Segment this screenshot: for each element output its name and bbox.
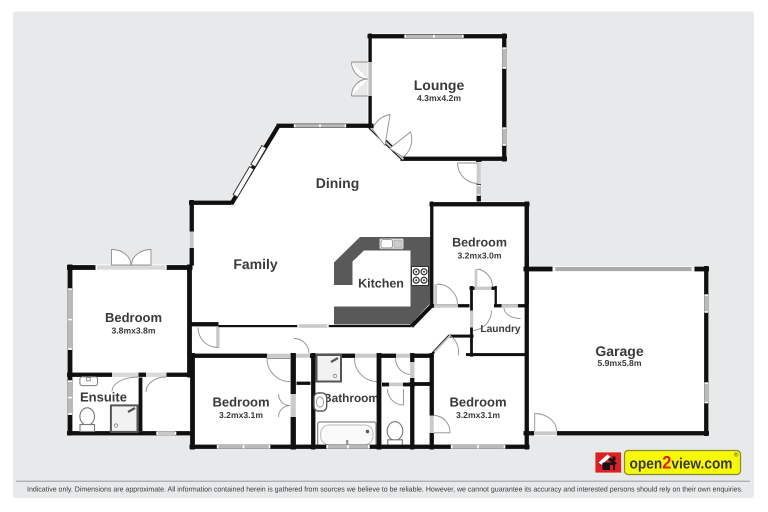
svg-text:Bathroom: Bathroom [323,391,379,405]
svg-text:Kitchen: Kitchen [358,277,404,291]
svg-text:Lounge: Lounge [414,77,465,93]
svg-text:Laundry: Laundry [480,324,521,335]
svg-text:Indicative only. Dimensions ar: Indicative only. Dimensions are approxim… [27,485,743,494]
svg-text:Bedroom: Bedroom [212,395,269,410]
svg-text:open2view.com: open2view.com [630,453,733,473]
svg-text:3.8mx3.8m: 3.8mx3.8m [112,326,156,336]
svg-text:Ensuite: Ensuite [80,390,127,405]
svg-text:Bedroom: Bedroom [105,310,162,325]
svg-text:4.3mx4.2m: 4.3mx4.2m [417,93,461,103]
svg-text:Garage: Garage [595,343,643,359]
svg-text:Dining: Dining [316,175,360,191]
svg-text:®: ® [734,452,739,459]
svg-text:Family: Family [233,256,278,272]
svg-text:3.2mx3.1m: 3.2mx3.1m [456,410,500,420]
svg-text:5.9mx5.8m: 5.9mx5.8m [598,358,642,368]
svg-text:3.2mx3.1m: 3.2mx3.1m [219,410,263,420]
svg-text:Bedroom: Bedroom [449,395,506,410]
svg-text:3.2mx3.0m: 3.2mx3.0m [458,251,502,261]
svg-text:Bedroom: Bedroom [452,236,507,250]
